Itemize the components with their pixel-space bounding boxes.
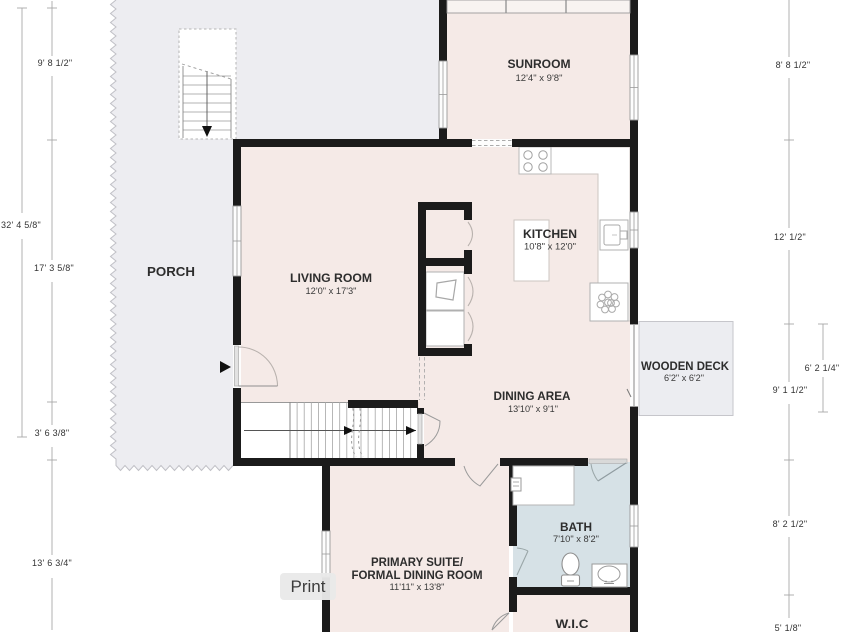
svg-text:7'10" x 8'2": 7'10" x 8'2" (553, 534, 599, 544)
svg-text:10'8" x 12'0": 10'8" x 12'0" (524, 242, 576, 252)
svg-text:12' 1/2": 12' 1/2" (774, 232, 806, 242)
svg-text:3' 6 3/8": 3' 6 3/8" (35, 428, 70, 438)
svg-text:9' 8 1/2": 9' 8 1/2" (38, 58, 73, 68)
svg-text:13'10" x 9'1": 13'10" x 9'1" (508, 404, 558, 414)
svg-text:Print: Print (291, 577, 326, 596)
svg-text:LIVING ROOM: LIVING ROOM (290, 271, 372, 285)
svg-text:32' 4 5/8": 32' 4 5/8" (1, 220, 41, 230)
svg-text:12'4" x 9'8": 12'4" x 9'8" (516, 73, 563, 83)
svg-text:PRIMARY SUITE/: PRIMARY SUITE/ (371, 555, 464, 569)
svg-text:5' 1/8": 5' 1/8" (775, 623, 802, 632)
svg-text:11'11" x 13'8": 11'11" x 13'8" (390, 582, 445, 592)
svg-text:W.I.C: W.I.C (556, 617, 589, 631)
svg-text:KITCHEN: KITCHEN (523, 227, 577, 241)
svg-text:8' 8 1/2": 8' 8 1/2" (776, 60, 811, 70)
svg-text:13' 6 3/4": 13' 6 3/4" (32, 558, 72, 568)
svg-text:9' 1 1/2": 9' 1 1/2" (773, 385, 808, 395)
svg-text:PORCH: PORCH (147, 264, 195, 279)
svg-text:8' 2 1/2": 8' 2 1/2" (773, 519, 808, 529)
svg-text:DINING AREA: DINING AREA (494, 389, 571, 403)
svg-text:SUNROOM: SUNROOM (508, 57, 571, 71)
svg-text:6'2" x 6'2": 6'2" x 6'2" (664, 373, 704, 383)
svg-text:BATH: BATH (560, 520, 592, 534)
svg-text:12'0" x 17'3": 12'0" x 17'3" (306, 286, 357, 296)
svg-text:FORMAL DINING ROOM: FORMAL DINING ROOM (352, 568, 483, 582)
svg-text:6' 2 1/4": 6' 2 1/4" (805, 363, 840, 373)
svg-text:17' 3 5/8": 17' 3 5/8" (34, 263, 74, 273)
svg-text:WOODEN DECK: WOODEN DECK (641, 359, 729, 373)
